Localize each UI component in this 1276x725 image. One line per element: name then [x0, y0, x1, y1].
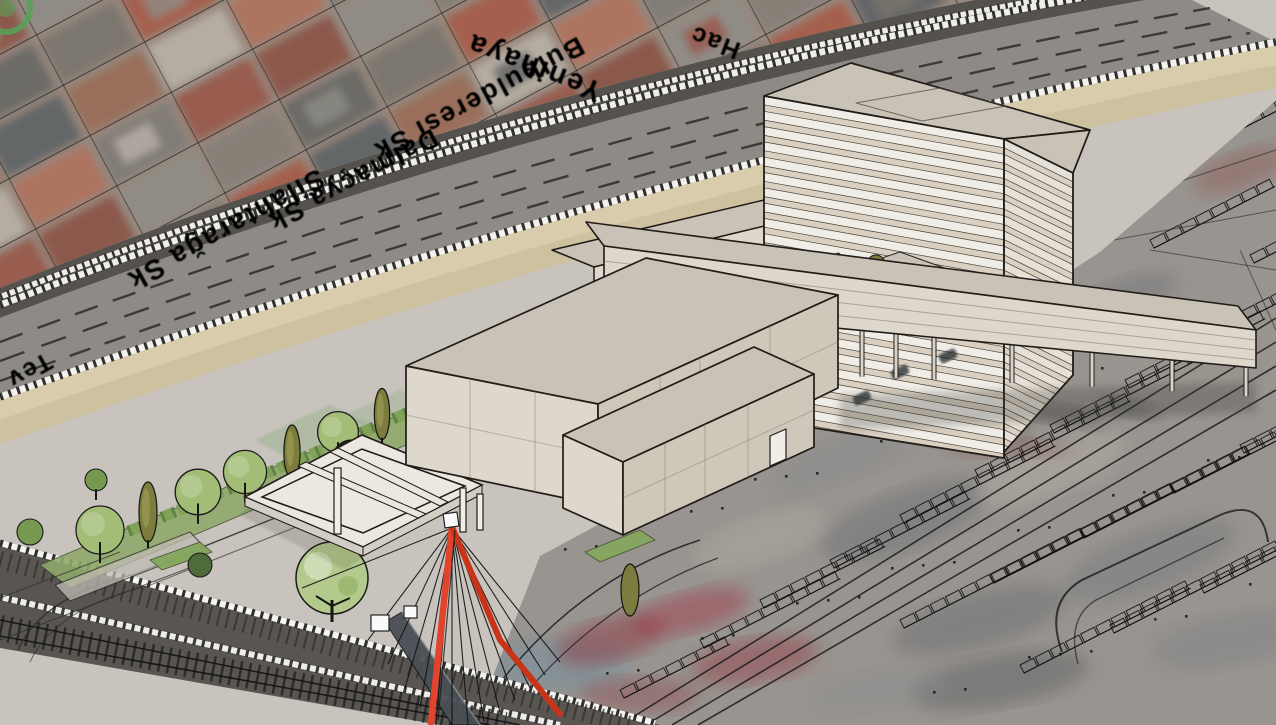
model-viewport[interactable]: Hac Yenihaya Bulbulderesi Sk Dalmaçya Sk…	[0, 0, 1276, 725]
scene-canvas[interactable]: Hac Yenihaya Bulbulderesi Sk Dalmaçya Sk…	[0, 0, 1276, 725]
